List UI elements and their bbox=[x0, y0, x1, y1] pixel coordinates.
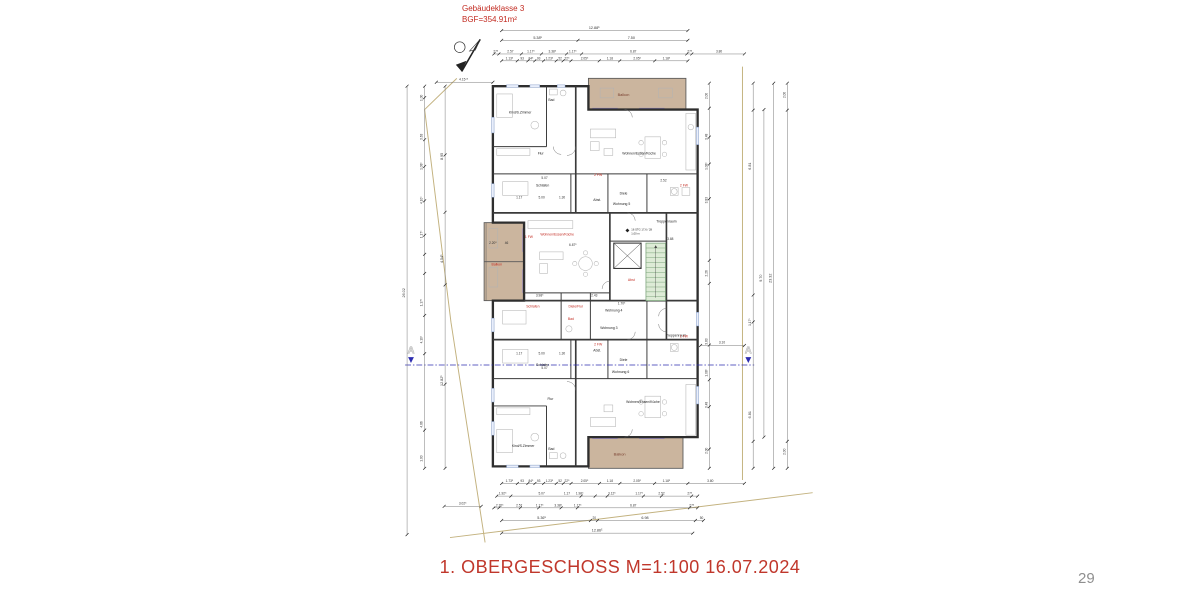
dim-label: 3.10 bbox=[719, 341, 725, 345]
code-label: 2 FW bbox=[594, 342, 603, 346]
room-label-abst3: Abst. bbox=[593, 348, 601, 352]
apartment-label-we6: Wohnung 6 bbox=[612, 370, 629, 374]
dim-label: 3.02⁵ bbox=[459, 501, 467, 505]
code-label: 2 FW bbox=[594, 173, 603, 177]
stair-note-line1: 16 STG 17,6 / 28 bbox=[631, 227, 652, 231]
dim-label: 2.05⁵ bbox=[633, 479, 641, 483]
room-label-wek1: Wohnen/Essen/Küche bbox=[622, 151, 656, 155]
dim-label: 1.17 bbox=[516, 195, 522, 199]
dim-label: 3.48 bbox=[704, 402, 708, 408]
room-label-diele1: Diele bbox=[620, 191, 628, 195]
dim-label: 1.18⁵ bbox=[663, 56, 671, 60]
dim-label: 3.80 bbox=[716, 50, 722, 54]
dim-label: 4.54⁵ bbox=[440, 254, 444, 263]
building-class-line: Gebäudeklasse 3 bbox=[462, 3, 524, 14]
dim-label: 6.81 bbox=[748, 162, 752, 169]
dim-label: 3.98⁵ bbox=[536, 294, 544, 298]
dim-label: 7.50 bbox=[628, 36, 635, 40]
room-label-wek2: Wohnen/Essen/Küche bbox=[540, 232, 574, 236]
dim-label: 1.30 bbox=[559, 195, 565, 199]
dim-label: 2.52 bbox=[658, 492, 664, 496]
dim-label: 1.92⁵ bbox=[499, 492, 507, 496]
room-label-dieleflur: Diele/Flur bbox=[568, 304, 583, 308]
dim-label: 5.00 bbox=[539, 195, 545, 199]
room-label-schlafen1: Schlafen bbox=[536, 184, 549, 188]
dim-label: 5.07 bbox=[541, 176, 547, 180]
dim-label: 2.00 bbox=[782, 92, 786, 98]
drawing-title: 1. OBERGESCHOSS M=1:100 16.07.2024 bbox=[390, 557, 850, 578]
dim-label: 50 bbox=[700, 516, 704, 520]
dim-label: 1.23⁵ bbox=[546, 479, 554, 483]
dim-label: 1.13⁵ bbox=[506, 56, 514, 60]
dim-label: 12.86⁵ bbox=[592, 529, 603, 533]
dim-label: 3.12⁵ bbox=[608, 492, 616, 496]
dim-label: 1.98⁵ bbox=[576, 492, 584, 496]
dim-label: 5.36⁵ bbox=[537, 516, 546, 520]
dim-label: 27⁵ bbox=[687, 492, 693, 496]
floor-plan-drawing: A A 12.88⁵ 5.38⁵ 7.50 27⁵ 2.57 1.17⁵ 3.3… bbox=[390, 14, 820, 559]
dim-label: 3.80 bbox=[707, 479, 713, 483]
page-number: 29 bbox=[1078, 570, 1095, 587]
dim-label: 2.00 bbox=[704, 93, 708, 99]
dim-label: 1.17⁵ bbox=[420, 230, 424, 238]
dim-label: 1.08⁵ bbox=[420, 162, 424, 170]
code-label: 1 FW bbox=[680, 335, 689, 339]
dim-label: 12.88⁵ bbox=[589, 26, 600, 30]
dim-label: 2.05⁵ bbox=[581, 479, 589, 483]
dim-label: 1.70⁵ bbox=[618, 302, 626, 306]
apartment-label-we3: Wohnung 3 bbox=[600, 326, 617, 330]
dim-label: 2.57 bbox=[507, 50, 513, 54]
dim-label: 1.00 bbox=[420, 95, 424, 101]
dim-label: 20 bbox=[592, 516, 596, 520]
dim-label: 1.18 bbox=[607, 56, 613, 60]
dim-label: 27⁵ bbox=[493, 50, 499, 54]
room-label-flur1: Flur bbox=[538, 151, 545, 155]
dim-label: 5.07 bbox=[539, 492, 545, 496]
dim-label: 4.15⁴⁵ bbox=[459, 77, 469, 81]
dim-label: 93 bbox=[537, 479, 541, 483]
dim-label: 12.82⁵ bbox=[440, 375, 444, 386]
apartment-label-we4: Wohnung 4 bbox=[605, 308, 622, 312]
dim-label: 2.52 bbox=[660, 179, 666, 183]
room-label-schlafen2: Schlafen bbox=[526, 304, 539, 308]
dim-label: 93 bbox=[520, 56, 524, 60]
dim-label: 6.87⁵ bbox=[569, 243, 577, 247]
room-label-schlafen3: Schlafen bbox=[536, 363, 549, 367]
dim-label: 4.10⁵ bbox=[420, 196, 424, 204]
room-label-balkon1: Balkon bbox=[618, 92, 630, 97]
room-label-abst1: Abst. bbox=[593, 198, 601, 202]
dim-label: 3.88 bbox=[667, 237, 673, 241]
room-label-diele2: Diele bbox=[620, 358, 628, 362]
room-label-bad2: Bad bbox=[568, 317, 574, 321]
section-marker-right: A bbox=[745, 345, 752, 356]
room-label-flur2: Flur bbox=[547, 397, 554, 401]
dim-label: 2.00 bbox=[782, 448, 786, 454]
dim-label: 2.20⁵ bbox=[489, 241, 497, 245]
dim-label: 93 bbox=[537, 56, 541, 60]
dim-label: 52 bbox=[558, 56, 562, 60]
code-label: 2 FW bbox=[680, 184, 689, 188]
dim-label: 1.17 bbox=[564, 492, 570, 496]
dim-label: 2.00 bbox=[704, 447, 708, 453]
dim-label: 2.26 bbox=[704, 270, 708, 276]
room-label-treppe1: Treppenraum bbox=[656, 220, 676, 224]
dim-label: 52 bbox=[558, 479, 562, 483]
dim-label: 3.83 bbox=[704, 338, 708, 344]
apartment-label-we5: Wohnung 5 bbox=[613, 202, 630, 206]
room-label-bad1: Bad bbox=[548, 98, 554, 102]
room-label-abst2: Abst bbox=[628, 278, 635, 282]
drawing-page: { "header": {"line1": "Gebäudeklasse 3",… bbox=[0, 0, 1200, 600]
dim-label: 8.95 bbox=[440, 153, 444, 160]
dim-label: 1.17⁵ bbox=[420, 298, 424, 306]
dim-label: 4.86 bbox=[420, 421, 424, 427]
dim-label: 22⁵ bbox=[565, 56, 571, 60]
stair-note-line2: 1,00 m bbox=[631, 231, 640, 235]
dim-label: 4.10⁵ bbox=[420, 335, 424, 343]
dim-label: 2.43 bbox=[591, 294, 597, 298]
room-label-kind2: Kind/S.Zimmer bbox=[512, 444, 535, 448]
dim-label: 5.00 bbox=[539, 351, 545, 355]
dim-label: 26.02 bbox=[402, 288, 406, 297]
dim-label: 1.73⁵ bbox=[506, 479, 514, 483]
stair-note-diamond-icon bbox=[625, 228, 629, 232]
dim-label: 1.18 bbox=[607, 479, 613, 483]
dim-label: 1.17⁵ bbox=[527, 50, 535, 54]
dim-label: 1.08⁵ bbox=[704, 162, 708, 170]
dim-label: 46 bbox=[505, 241, 509, 245]
room-label-kind1: Kind/S.Zimmer bbox=[509, 110, 532, 114]
dim-label: 5.38⁵ bbox=[533, 36, 542, 40]
dim-label: 6.87 bbox=[630, 50, 636, 54]
dim-label: 22⁵ bbox=[565, 479, 571, 483]
dim-label: 2.05⁵ bbox=[581, 56, 589, 60]
room-label-balkon3: Balkon bbox=[614, 452, 626, 457]
room-label-wek3: Wohnen/Essen/Küche bbox=[626, 400, 660, 404]
dim-label: 6.98 bbox=[641, 516, 648, 520]
dim-label: 1.17⁵ bbox=[635, 492, 643, 496]
dim-label: 1.17 bbox=[516, 351, 522, 355]
dim-label: 2.05⁵ bbox=[633, 56, 641, 60]
dim-label: 6.87 bbox=[630, 503, 636, 507]
section-marker-left: A bbox=[407, 345, 414, 356]
dim-label: 1.00 bbox=[420, 455, 424, 461]
room-label-balkon2: Balkon bbox=[492, 263, 503, 267]
north-arrow-icon bbox=[454, 39, 480, 71]
dim-label: 3.38⁵ bbox=[554, 503, 562, 507]
dim-label: 1.17⁵ bbox=[569, 50, 577, 54]
dim-label: 1.17⁵ bbox=[748, 318, 752, 326]
dim-label: 1.18⁵ bbox=[663, 479, 671, 483]
code-label: 1 FW bbox=[525, 235, 534, 239]
dim-label: 3.38⁵ bbox=[549, 50, 557, 54]
stair-core bbox=[614, 243, 666, 301]
dim-label: 6.81 bbox=[748, 411, 752, 418]
dim-label: 9.70 bbox=[759, 275, 763, 282]
dim-label: 3.48 bbox=[704, 134, 708, 140]
dim-label: 1.30 bbox=[559, 351, 565, 355]
dim-label: 3.63 bbox=[420, 134, 424, 140]
dim-label: 1.23⁵ bbox=[546, 56, 554, 60]
room-label-bad3: Bad bbox=[548, 447, 554, 451]
dim-label: 23.32 bbox=[769, 274, 773, 283]
dim-label: 93 bbox=[520, 479, 524, 483]
dim-label: 1.08⁵ bbox=[704, 368, 708, 376]
